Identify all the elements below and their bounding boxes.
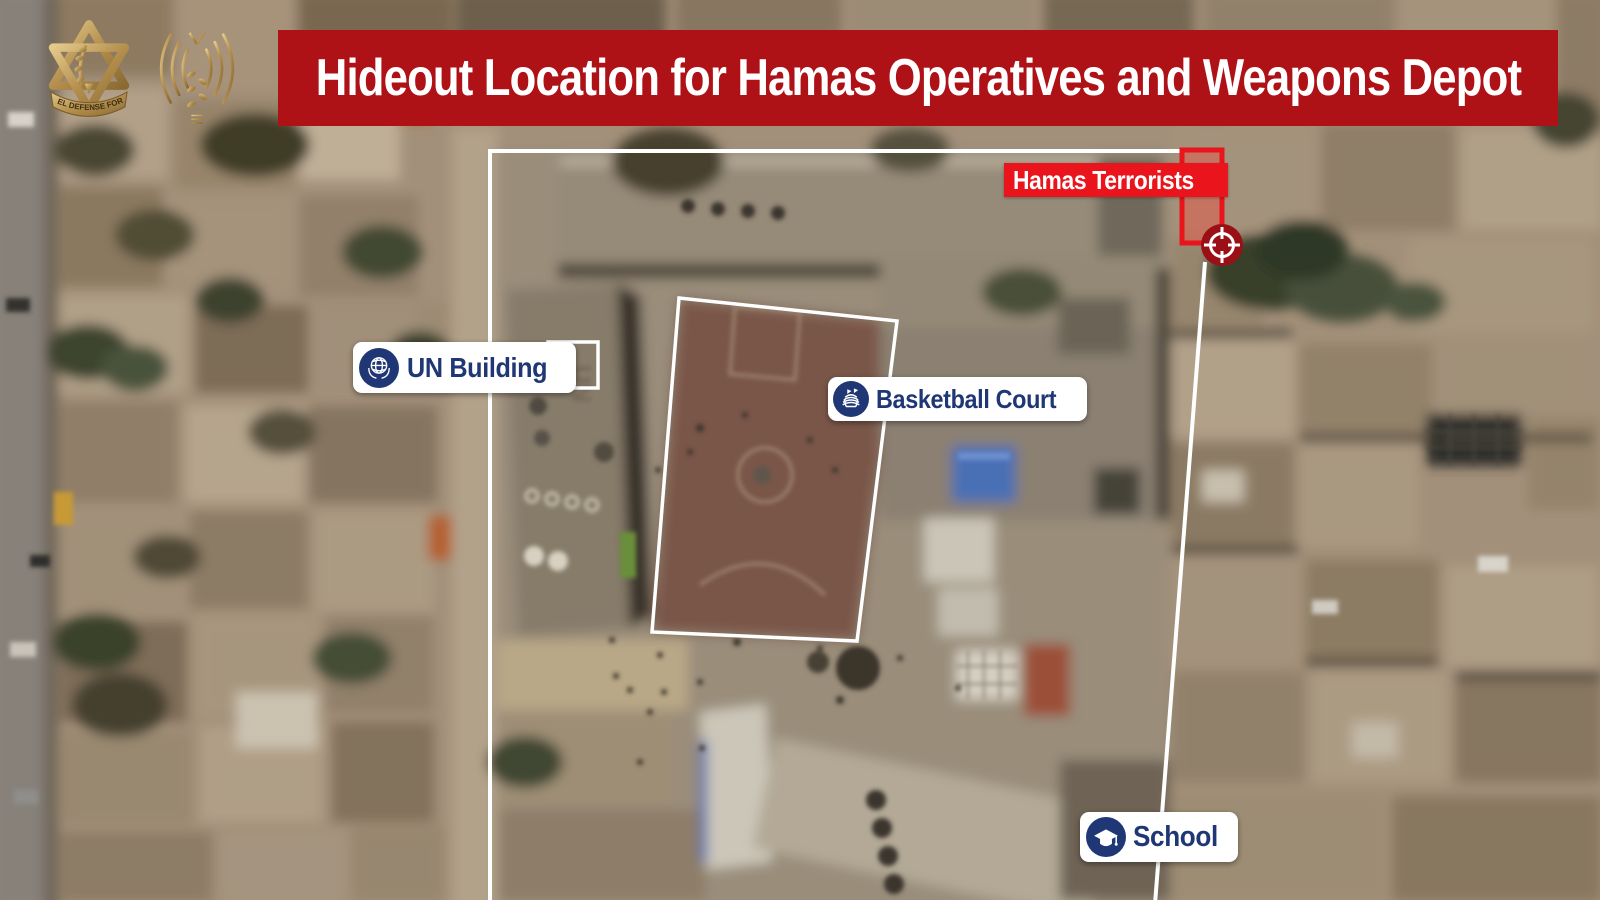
- hamas-terrorists-text: Hamas Terrorists: [1013, 165, 1194, 196]
- un-building-label: UN Building: [353, 342, 576, 393]
- hamas-terrorists-label: Hamas Terrorists: [1004, 163, 1228, 197]
- basketball-court-text: Basketball Court: [876, 384, 1056, 415]
- page-title: Hideout Location for Hamas Operatives an…: [315, 48, 1520, 108]
- idf-emblem-logo: ISRAEL DEFENSE FORCES: [36, 18, 142, 128]
- un-globe-icon: [359, 348, 399, 388]
- school-label: School: [1080, 812, 1238, 862]
- radio-antenna-logo: [150, 22, 244, 132]
- crosshair-icon: [1201, 224, 1243, 266]
- stadium-icon: [833, 381, 869, 417]
- antenna-mast-icon: [186, 33, 208, 123]
- un-building-text: UN Building: [407, 352, 547, 384]
- graduation-cap-icon: [1086, 817, 1126, 857]
- school-text: School: [1133, 821, 1218, 854]
- basketball-court-label: Basketball Court: [828, 377, 1087, 421]
- infographic-canvas: UN Hideout Location for Hamas Operatives…: [0, 0, 1600, 900]
- title-banner: Hideout Location for Hamas Operatives an…: [278, 30, 1558, 126]
- satellite-map: UN: [0, 0, 1600, 900]
